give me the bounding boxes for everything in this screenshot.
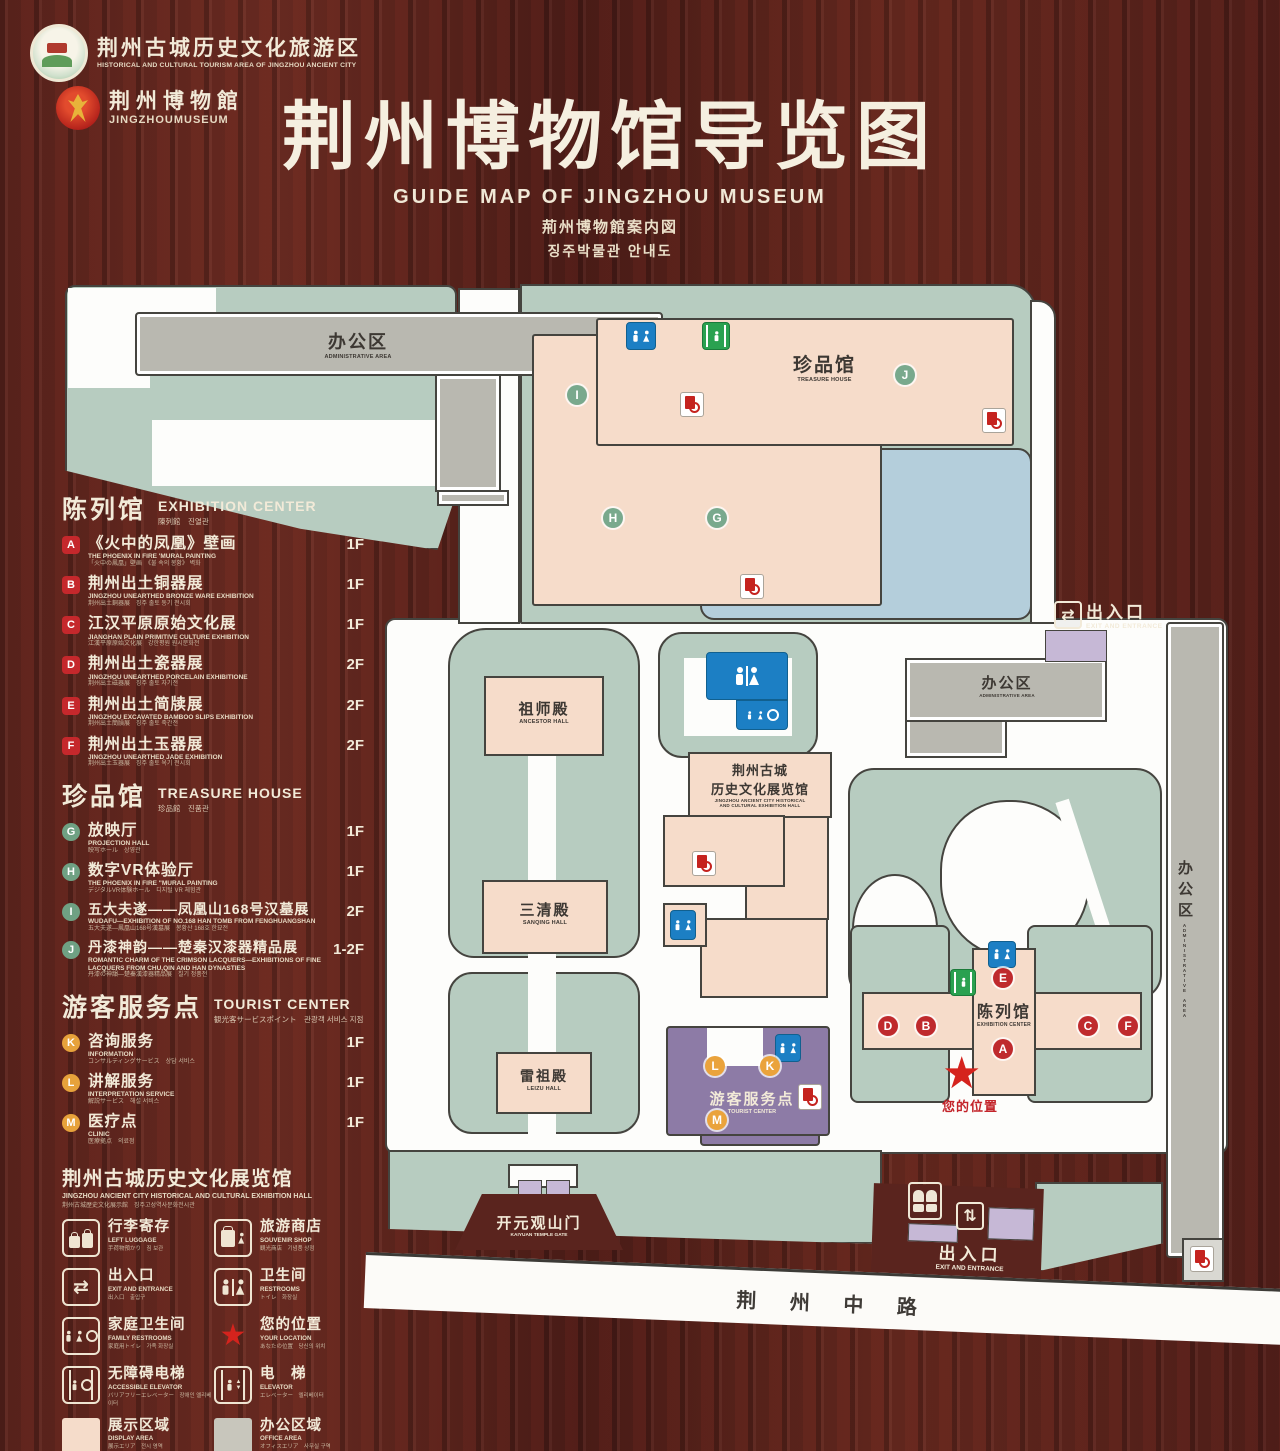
woman-pictogram (791, 1043, 796, 1053)
legend-display-area: 展示区域DISPLAY AREA展示エリア 전시 영역 (62, 1418, 214, 1451)
exit-entrance-icon: ⇅ (956, 1202, 984, 1230)
pagoda-mark (47, 43, 67, 53)
marker-K: K (760, 1056, 780, 1076)
marker-B: B (916, 1016, 936, 1036)
label-exit-north: 出入口 EXIT AND ENTRANCE (1086, 598, 1196, 630)
legend-section-tourist-center: 游客服务点 TOURIST CENTER観光客サービスポイント 관광객 서비스 … (62, 996, 364, 1025)
section-title: 游客服务点 (62, 996, 202, 1021)
dome-mark (926, 1204, 937, 1212)
dome-mark (913, 1190, 924, 1202)
floor-label: 2F (346, 736, 364, 754)
floor-label: 2F (346, 696, 364, 714)
hills-mark (42, 55, 72, 67)
badge-C: C (62, 616, 80, 634)
floor-label: 1F (346, 1073, 364, 1091)
legend-section-exhibition-center: 陈列馆 EXHIBITION CENTER陳列館 진열관 (62, 498, 364, 527)
badge-K: K (62, 1034, 80, 1052)
label-tourist-center: 游客服务点 TOURIST CENTER (688, 1088, 816, 1115)
section-title: 珍品馆 (62, 785, 146, 810)
floor-label: 2F (346, 655, 364, 673)
badge-G: G (62, 823, 80, 841)
section-title: 陈列馆 (62, 498, 146, 523)
exit-entrance-icon: ⇄ (1054, 601, 1082, 629)
person-pictogram (714, 331, 719, 341)
legend-family-restrooms: 家庭卫生间FAMILY RESTROOMS家庭用トイレ 가족 화장실 (62, 1317, 214, 1355)
legend-item-K: K 咨询服务INFORMATIONコンサルティングサービス 상담 서비스 1F (62, 1033, 364, 1066)
left-luggage-icon (62, 1219, 100, 1257)
tourism-area-badge: 荆州古城历史文化旅游区 HISTORICAL AND CULTURAL TOUR… (30, 24, 361, 82)
floor-label: 1F (346, 575, 364, 593)
legend-item-J: J 丹漆神韵——楚秦汉漆器精品展ROMANTIC CHARM OF THE CR… (62, 940, 364, 979)
badge-H: H (62, 863, 80, 881)
area-green-south (388, 1150, 882, 1244)
legend-item-G: G 放映厅PROJECTION HALL映写ホール 상영관 1F (62, 822, 364, 855)
road-label: 荆 州 中 路 (736, 1284, 932, 1321)
legend-exit-entrance: ⇄ 出入口EXIT AND ENTRANCE出入口 출입구 (62, 1268, 214, 1306)
legend-item-L: L 讲解服务INTERPRETATION SERVICE解説サービス 해설 서비… (62, 1073, 364, 1106)
restrooms-icon (988, 941, 1016, 968)
woman-pictogram (750, 667, 759, 686)
map-title-ko: 징주박물관 안내도 (0, 241, 1220, 261)
label-treasure-house: 珍品馆 TREASURE HOUSE (742, 350, 907, 383)
man-pictogram (735, 667, 744, 686)
floor-label: 1-2F (333, 940, 364, 958)
badge-B: B (62, 576, 80, 594)
floor-label: 2F (346, 902, 364, 920)
legend-left-luggage: 行李寄存LEFT LUGGAGE手荷物預かり 짐 보관 (62, 1219, 214, 1257)
label-admin-area-east: 办公区 ADMINISTRATIVE AREA (952, 672, 1062, 698)
marker-I: I (567, 385, 587, 405)
your-location-icon: ★ (214, 1317, 252, 1355)
person-pictogram (961, 978, 966, 988)
label-ancestor-hall: 祖师殿ANCESTOR HALL (488, 698, 600, 725)
map-title: 荆州博物馆导览图 (0, 100, 1220, 174)
label-admin-strip: 办公区 ADMINISTRATIVE AREA (1174, 860, 1195, 1100)
building-admin-northwest-wing (435, 374, 501, 492)
elevator-icon: ▲▼ (214, 1366, 252, 1404)
road-jingzhou-middle: 荆 州 中 路 (364, 1252, 1280, 1346)
man-pictogram (747, 711, 751, 720)
woman-pictogram (644, 330, 650, 342)
legend-item-B: B 荆州出土铜器展JINGZHOU UNEARTHED BRONZE WARE … (62, 575, 364, 608)
marker-F: F (1118, 1016, 1138, 1036)
accessible-elevator-icon (692, 851, 716, 876)
office-area-swatch (214, 1418, 252, 1451)
area-green-southeast (1035, 1182, 1163, 1272)
wheelchair-pictogram (767, 709, 779, 721)
woman-pictogram (1005, 949, 1010, 959)
legend-your-location: ★ 您的位置YOUR LOCATIONあなたの位置 당신의 위치 (214, 1317, 364, 1355)
marker-A: A (993, 1039, 1013, 1059)
woman-pictogram (686, 920, 691, 930)
accessible-elevator-icon (62, 1366, 100, 1404)
man-pictogram (633, 330, 639, 342)
badge-J: J (62, 941, 80, 959)
label-exit-south: 出入口 EXIT AND ENTRANCE (907, 1238, 1032, 1274)
marker-L: L (705, 1056, 725, 1076)
legend-item-E: E 荆州出土简牍展JINGZHOU EXCAVATED BAMBOO SLIPS… (62, 696, 364, 729)
floor-label: 1F (346, 1033, 364, 1051)
legend-item-A: A 《火中的凤凰》壁画THE PHOENIX IN FIRE 'MURAL PA… (62, 535, 364, 568)
legend-item-D: D 荆州出土瓷器展JINGZHOU UNEARTHED PORCELAIN EX… (62, 655, 364, 688)
badge-F: F (62, 737, 80, 755)
building-admin-northwest-foot (437, 490, 509, 506)
badge-M: M (62, 1114, 80, 1132)
legend-item-I: I 五大夫遂——凤凰山168号汉墓展WUDAFU—EXHIBITION OF N… (62, 902, 364, 933)
badge-L: L (62, 1074, 80, 1092)
legend-section-treasure-house: 珍品馆 TREASURE HOUSE珍品館 진품관 (62, 785, 364, 814)
marker-H: H (603, 508, 623, 528)
legend-item-M: M 医疗点CLINIC医療拠点 의료점 1F (62, 1113, 364, 1146)
building-hist-hall-south (700, 918, 828, 998)
marker-E: E (993, 968, 1013, 988)
marker-D: D (878, 1016, 898, 1036)
legend-item-H: H 数字VR体验厅THE PHOENIX IN FIRE "MURAL PAIN… (62, 862, 364, 895)
map-title-ja: 荊州博物館案内図 (0, 216, 1220, 237)
divider (746, 666, 748, 686)
floor-label: 1F (346, 1113, 364, 1131)
accessible-elevator-icon (1190, 1246, 1214, 1272)
map-shape (152, 420, 452, 486)
display-area-swatch (62, 1418, 100, 1451)
legend-item-C: C 江汉平原原始文化展JIANGHAN PLAIN PRIMITIVE CULT… (62, 615, 364, 648)
restrooms-icon (214, 1268, 252, 1306)
gate-structure (1045, 630, 1107, 662)
label-kaiyuan-gate: 开元观山门 KAIYUAN TEMPLE GATE (466, 1212, 612, 1238)
family-restrooms-icon (736, 700, 788, 730)
tourism-area-name-en: HISTORICAL AND CULTURAL TOURISM AREA OF … (97, 62, 361, 69)
man-pictogram (994, 949, 999, 959)
label-admin-area-northwest: 办公区 ADMINISTRATIVE AREA (258, 328, 458, 360)
marker-M: M (707, 1110, 727, 1130)
booth-icon (908, 1182, 942, 1220)
legend-office-area: 办公区域OFFICE AREAオフィスエリア 사무실 구역 (214, 1418, 364, 1451)
accessible-elevator-icon (740, 574, 764, 599)
legend-panel: 陈列馆 EXHIBITION CENTER陳列館 진열관 A 《火中的凤凰》壁画… (62, 498, 364, 1451)
elevator-icon (950, 969, 976, 996)
souvenir-shop-icon (214, 1219, 252, 1257)
man-pictogram (675, 920, 680, 930)
accessible-elevator-icon (982, 408, 1006, 433)
building-tourist-center-steps (700, 1134, 820, 1146)
dome-mark (913, 1204, 924, 1212)
restrooms-icon (670, 910, 696, 940)
legend-item-F: F 荆州出土玉器展JINGZHOU UNEARTHED JADE EXHIBIT… (62, 736, 364, 769)
accessible-elevator-icon (798, 1084, 822, 1110)
label-hist-hall: 荆州古城 历史文化展览馆 JINGZHOU ANCIENT CITY HISTO… (690, 760, 830, 808)
elevator-icon (702, 322, 730, 350)
badge-E: E (62, 697, 80, 715)
hall-note: 荆州古城历史文化展览馆 JINGZHOU ANCIENT CITY HISTOR… (62, 1162, 364, 1209)
marker-G: G (707, 508, 727, 528)
floor-label: 1F (346, 615, 364, 633)
gate-structure (987, 1207, 1034, 1241)
badge-A: A (62, 536, 80, 554)
path-vertical-east (1030, 300, 1056, 624)
label-leizu-hall: 雷祖殿LEIZU HALL (498, 1066, 590, 1092)
floor-label: 1F (346, 822, 364, 840)
floor-label: 1F (346, 535, 364, 553)
restrooms-icon (706, 652, 788, 700)
exit-entrance-icon: ⇄ (62, 1268, 100, 1306)
dome-mark (926, 1190, 937, 1202)
woman-pictogram (758, 711, 762, 720)
badge-D: D (62, 656, 80, 674)
legend-elevator: ▲▼ 电 梯ELEVATORエレベーター 엘리베이터 (214, 1366, 364, 1407)
your-location-icon: ★ (942, 1052, 981, 1096)
icon-legend: 行李寄存LEFT LUGGAGE手荷物預かり 짐 보관 旅游商店SOUVENIR… (62, 1219, 364, 1451)
label-sanqing-hall: 三清殿SANQING HALL (488, 899, 602, 926)
restrooms-icon (775, 1034, 801, 1062)
title-block: 荆州博物馆导览图 GUIDE MAP OF JINGZHOU MUSEUM 荊州… (0, 100, 1220, 261)
family-restrooms-icon (62, 1317, 100, 1355)
label-your-location: 您的位置 (924, 1096, 1016, 1115)
label-exhibition-center: 陈列馆 EXHIBITION CENTER (948, 998, 1060, 1028)
man-pictogram (780, 1043, 785, 1053)
legend-restrooms: 卫生间RESTROOMSトイレ 화장실 (214, 1268, 364, 1306)
legend-souvenir-shop: 旅游商店SOUVENIR SHOP観光商店 기념품 상점 (214, 1219, 364, 1257)
floor-label: 1F (346, 862, 364, 880)
accessible-elevator-icon (680, 392, 704, 417)
restrooms-icon (626, 322, 656, 350)
badge-I: I (62, 903, 80, 921)
marker-J: J (895, 365, 915, 385)
map-title-en: GUIDE MAP OF JINGZHOU MUSEUM (0, 186, 1220, 209)
legend-accessible-elevator: 无障碍电梯ACCESSIBLE ELEVATORバリアフリーエレベーター 장애인… (62, 1366, 214, 1407)
tourism-area-name: 荆州古城历史文化旅游区 (97, 37, 361, 61)
marker-C: C (1078, 1016, 1098, 1036)
building-hist-hall-mid (663, 815, 785, 887)
tourism-area-logo-icon (30, 24, 88, 82)
guide-map-poster: 荆州古城历史文化旅游区 HISTORICAL AND CULTURAL TOUR… (0, 0, 1280, 1451)
